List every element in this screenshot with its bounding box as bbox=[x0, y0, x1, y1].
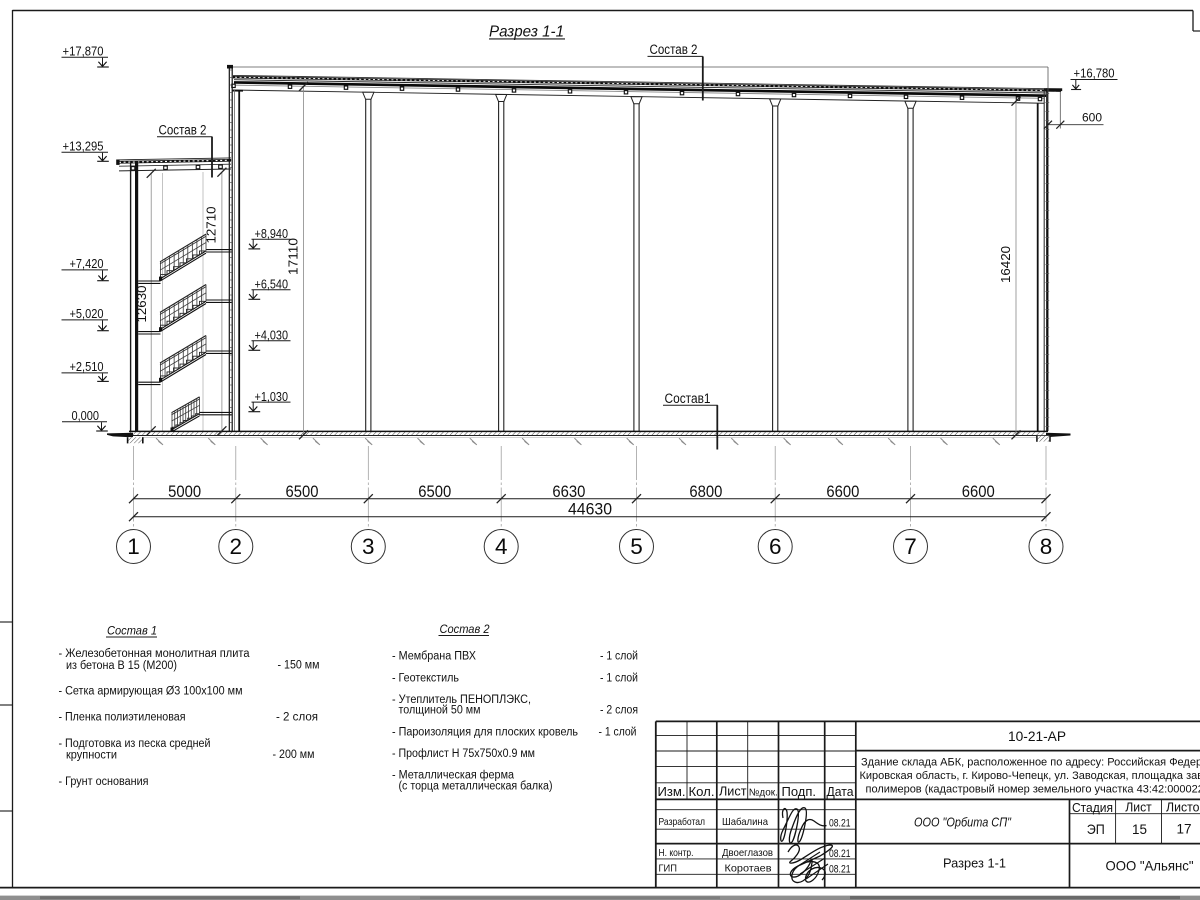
svg-text:6500: 6500 bbox=[418, 483, 451, 501]
svg-text:(с торца металлическая балка): (с торца металлическая балка) bbox=[399, 781, 553, 793]
svg-text:- 150 мм: - 150 мм bbox=[278, 660, 320, 672]
svg-text:полимеров (кадастровый номер з: полимеров (кадастровый номер земельного … bbox=[866, 783, 1200, 795]
svg-text:Лист: Лист bbox=[1125, 799, 1152, 814]
svg-text:Лист: Лист bbox=[719, 783, 747, 798]
svg-text:- 2 слоя: - 2 слоя bbox=[600, 704, 638, 716]
svg-text:3: 3 bbox=[362, 534, 375, 559]
svg-text:Коротаев: Коротаев bbox=[725, 864, 772, 875]
svg-text:0,000: 0,000 bbox=[72, 409, 100, 423]
svg-text:17: 17 bbox=[1177, 820, 1192, 836]
svg-text:6500: 6500 bbox=[286, 483, 319, 501]
svg-text:- Металлическая ферма: - Металлическая ферма bbox=[392, 769, 515, 781]
svg-text:ЭП: ЭП bbox=[1087, 821, 1105, 837]
svg-text:Состав 1: Состав 1 bbox=[107, 623, 157, 637]
svg-text:- Пленка полиэтиленовая: - Пленка полиэтиленовая bbox=[59, 711, 186, 723]
svg-text:Стадия: Стадия bbox=[1072, 800, 1113, 815]
svg-text:крупности: крупности bbox=[66, 749, 117, 761]
svg-text:+13,295: +13,295 bbox=[63, 139, 104, 153]
svg-text:+17,870: +17,870 bbox=[63, 44, 104, 58]
svg-text:- 1 слой: - 1 слой bbox=[600, 650, 638, 662]
svg-text:08.21: 08.21 bbox=[829, 863, 851, 875]
svg-text:Кол.: Кол. bbox=[689, 784, 715, 799]
svg-text:+16,780: +16,780 bbox=[1074, 67, 1115, 81]
svg-text:08.21: 08.21 bbox=[829, 818, 851, 830]
svg-text:- Профлист Н 75х750х0.9 мм: - Профлист Н 75х750х0.9 мм bbox=[392, 748, 535, 760]
svg-text:- Геотекстиль: - Геотекстиль bbox=[392, 672, 459, 684]
svg-text:Разрез 1-1: Разрез 1-1 bbox=[943, 856, 1006, 871]
svg-text:ООО "Орбита СП": ООО "Орбита СП" bbox=[914, 815, 1012, 830]
svg-text:- 2 слоя: - 2 слоя bbox=[276, 711, 318, 723]
svg-text:толщиной 50 мм: толщиной 50 мм bbox=[399, 704, 481, 716]
svg-text:- Сетка армирующая Ø3 100х100: - Сетка армирующая Ø3 100х100 мм bbox=[59, 685, 243, 697]
svg-text:Состав 2: Состав 2 bbox=[650, 42, 698, 57]
svg-text:Н. контр.: Н. контр. bbox=[659, 848, 694, 859]
svg-text:8: 8 bbox=[1040, 534, 1053, 559]
svg-text:Состав 2: Состав 2 bbox=[159, 123, 207, 138]
svg-text:12630: 12630 bbox=[134, 286, 149, 323]
svg-text:5: 5 bbox=[630, 534, 643, 559]
svg-text:- 1 слой: - 1 слой bbox=[599, 726, 637, 738]
svg-text:- Подготовка из песка средней: - Подготовка из песка средней bbox=[59, 738, 211, 750]
svg-text:+7,420: +7,420 bbox=[70, 257, 104, 271]
svg-text:+5,020: +5,020 bbox=[70, 307, 104, 321]
svg-text:Изм.: Изм. bbox=[658, 784, 686, 799]
svg-text:2: 2 bbox=[230, 534, 243, 559]
svg-text:6: 6 bbox=[769, 534, 782, 559]
svg-text:12710: 12710 bbox=[204, 207, 219, 244]
svg-text:Шабалина: Шабалина bbox=[722, 816, 768, 828]
svg-text:17110: 17110 bbox=[286, 238, 301, 275]
svg-text:№док.: №док. bbox=[749, 788, 778, 799]
svg-text:08.21: 08.21 bbox=[829, 848, 851, 860]
svg-text:6600: 6600 bbox=[962, 483, 995, 501]
svg-text:Дата: Дата bbox=[827, 784, 855, 799]
svg-text:44630: 44630 bbox=[568, 501, 612, 519]
svg-text:Кировская область, г. Кирово-Ч: Кировская область, г. Кирово-Чепецк, ул.… bbox=[860, 770, 1200, 782]
svg-text:Здание склада АБК, расположенн: Здание склада АБК, расположенное по адре… bbox=[861, 756, 1200, 768]
svg-text:16420: 16420 bbox=[998, 246, 1013, 283]
svg-text:6600: 6600 bbox=[826, 483, 859, 501]
svg-text:Разрез 1-1: Разрез 1-1 bbox=[489, 24, 564, 41]
svg-text:5000: 5000 bbox=[168, 483, 201, 501]
svg-text:6800: 6800 bbox=[689, 483, 722, 501]
svg-text:- Пароизоляция для плоских кро: - Пароизоляция для плоских кровель bbox=[392, 726, 578, 738]
svg-text:Двоеглазов: Двоеглазов bbox=[722, 848, 773, 859]
svg-text:6630: 6630 bbox=[552, 483, 585, 501]
svg-text:Подп.: Подп. bbox=[782, 784, 817, 799]
svg-text:4: 4 bbox=[495, 534, 508, 559]
svg-text:600: 600 bbox=[1082, 111, 1102, 125]
svg-text:Состав1: Состав1 bbox=[665, 391, 711, 406]
svg-text:- Мембрана ПВХ: - Мембрана ПВХ bbox=[392, 650, 476, 662]
svg-text:Разработал: Разработал bbox=[659, 816, 706, 828]
svg-text:- Железобетонная монолитная п: - Железобетонная монолитная плита bbox=[59, 648, 251, 660]
svg-text:15: 15 bbox=[1132, 821, 1147, 837]
svg-text:7: 7 bbox=[904, 534, 917, 559]
svg-text:+2,510: +2,510 bbox=[70, 360, 104, 374]
svg-text:10-21-АР: 10-21-АР bbox=[1008, 729, 1066, 745]
svg-text:- 1 слой: - 1 слой bbox=[600, 672, 638, 684]
svg-text:Состав 2: Состав 2 bbox=[440, 622, 490, 636]
svg-text:- 200 мм: - 200 мм bbox=[273, 749, 315, 761]
svg-text:- Грунт основания: - Грунт основания bbox=[59, 776, 149, 788]
svg-text:ООО "Альянс": ООО "Альянс" bbox=[1106, 858, 1194, 874]
svg-text:ГИП: ГИП bbox=[659, 864, 678, 875]
svg-text:Листов: Листов bbox=[1166, 799, 1200, 814]
svg-text:1: 1 bbox=[127, 534, 140, 559]
svg-text:из бетона В 15 (М200): из бетона В 15 (М200) bbox=[66, 660, 177, 672]
